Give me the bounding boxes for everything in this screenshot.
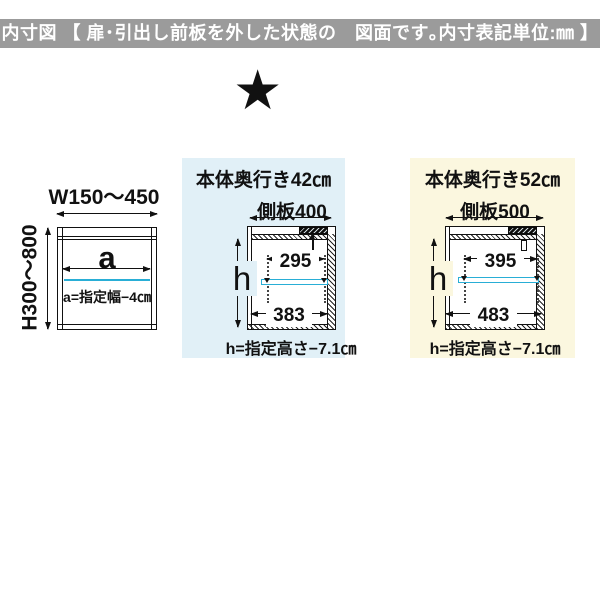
hanger-detail bbox=[521, 240, 527, 251]
height-dimension-arrow bbox=[47, 228, 48, 329]
depth52-title: 本体奥行き52㎝ bbox=[410, 165, 575, 192]
rail-detail bbox=[508, 227, 537, 234]
depth42-height-formula: h=指定高さ−7.1㎝ bbox=[211, 335, 371, 359]
lower-width-label: 483 bbox=[470, 305, 517, 327]
upper-width-label: 295 bbox=[272, 251, 319, 273]
depth52-height-formula: h=指定高さ−7.1㎝ bbox=[415, 335, 575, 359]
shelf-pin-right-icon bbox=[321, 278, 327, 283]
depth52-panel: 本体奥行き52㎝ 側板500 h 395 483 h=指定高さ−7.1㎝ bbox=[410, 158, 575, 358]
top-panel-hatch bbox=[252, 234, 328, 240]
depth42-cabinet-section: 295 383 bbox=[247, 226, 336, 330]
shelf-line bbox=[64, 279, 150, 281]
depth52-cabinet-section: 395 483 bbox=[445, 226, 545, 330]
inner-width-symbol: a bbox=[58, 240, 156, 276]
header-bar: 内寸図 【 扉･引出し前板を外した状態の 図面です｡内寸表記単位:㎜ 】 bbox=[0, 19, 600, 48]
depth42-panel: 本体奥行き42㎝ 側板400 h 295 383 h=指定高さ−7.1㎝ bbox=[182, 158, 345, 358]
bottom-rail-line bbox=[58, 324, 156, 325]
depth52-side-panel-arrow bbox=[446, 217, 543, 218]
width-dimension-arrow bbox=[57, 213, 157, 214]
depth52-side-panel-label: 側板500 bbox=[445, 197, 545, 224]
cabinet-front-outline: a a=指定幅−4㎝ bbox=[57, 227, 157, 330]
upper-width-label: 395 bbox=[477, 251, 524, 273]
rail-pin-arrow-icon bbox=[309, 234, 315, 239]
product-dimension-figure: 内寸図 【 扉･引出し前板を外した状態の 図面です｡内寸表記単位:㎜ 】 ★ W… bbox=[0, 0, 600, 600]
height-range-label: H300～800 bbox=[19, 222, 42, 334]
inner-width-arrow bbox=[63, 268, 150, 269]
shelf-bar bbox=[458, 277, 539, 283]
lower-width-label: 383 bbox=[266, 305, 312, 327]
back-panel-hatch bbox=[327, 234, 335, 329]
depth42-height-symbol: h bbox=[227, 261, 257, 296]
shelf-pin-left-icon bbox=[264, 278, 270, 283]
shelf-pin-right-icon bbox=[534, 276, 540, 281]
header-title: 内寸図 【 扉･引出し前板を外した状態の 図面です｡内寸表記単位:㎜ 】 bbox=[2, 23, 599, 43]
width-range-label: W150～450 bbox=[45, 186, 163, 210]
star-icon: ★ bbox=[233, 63, 282, 118]
depth52-height-symbol: h bbox=[423, 261, 453, 296]
shelf-pin-left-icon bbox=[461, 276, 467, 281]
shelf-bar bbox=[261, 279, 328, 285]
inner-width-formula: a=指定幅−4㎝ bbox=[58, 289, 156, 305]
depth42-side-panel-arrow bbox=[250, 217, 331, 218]
rail-detail bbox=[299, 227, 328, 234]
top-rail-line-upper bbox=[58, 236, 156, 237]
depth42-title: 本体奥行き42㎝ bbox=[182, 165, 345, 192]
